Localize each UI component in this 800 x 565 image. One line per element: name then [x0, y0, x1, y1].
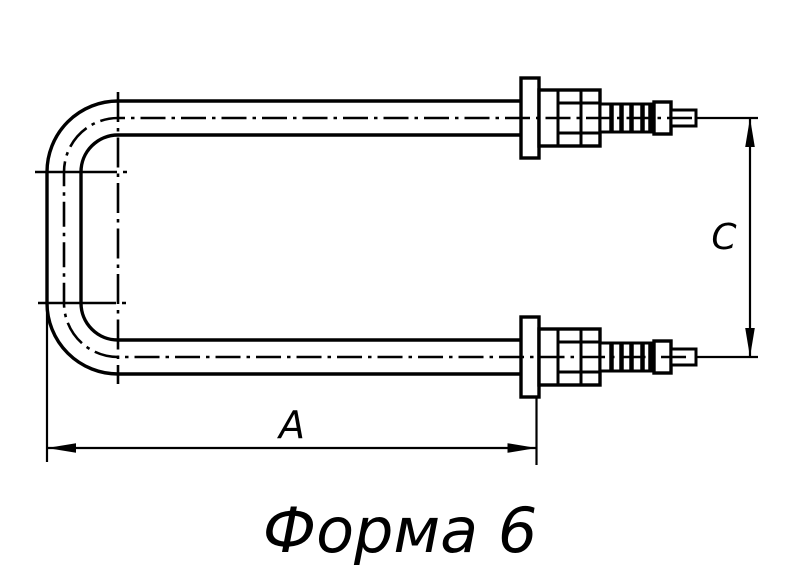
drawing-background [0, 0, 800, 565]
drawing-title: Форма 6 [263, 494, 538, 565]
heating-element-drawing: A C Форма 6 [0, 0, 800, 565]
dimension-label-a: A [276, 403, 305, 447]
dimension-label-c: C [711, 217, 737, 258]
technical-drawing-canvas: A C Форма 6 [0, 0, 800, 565]
